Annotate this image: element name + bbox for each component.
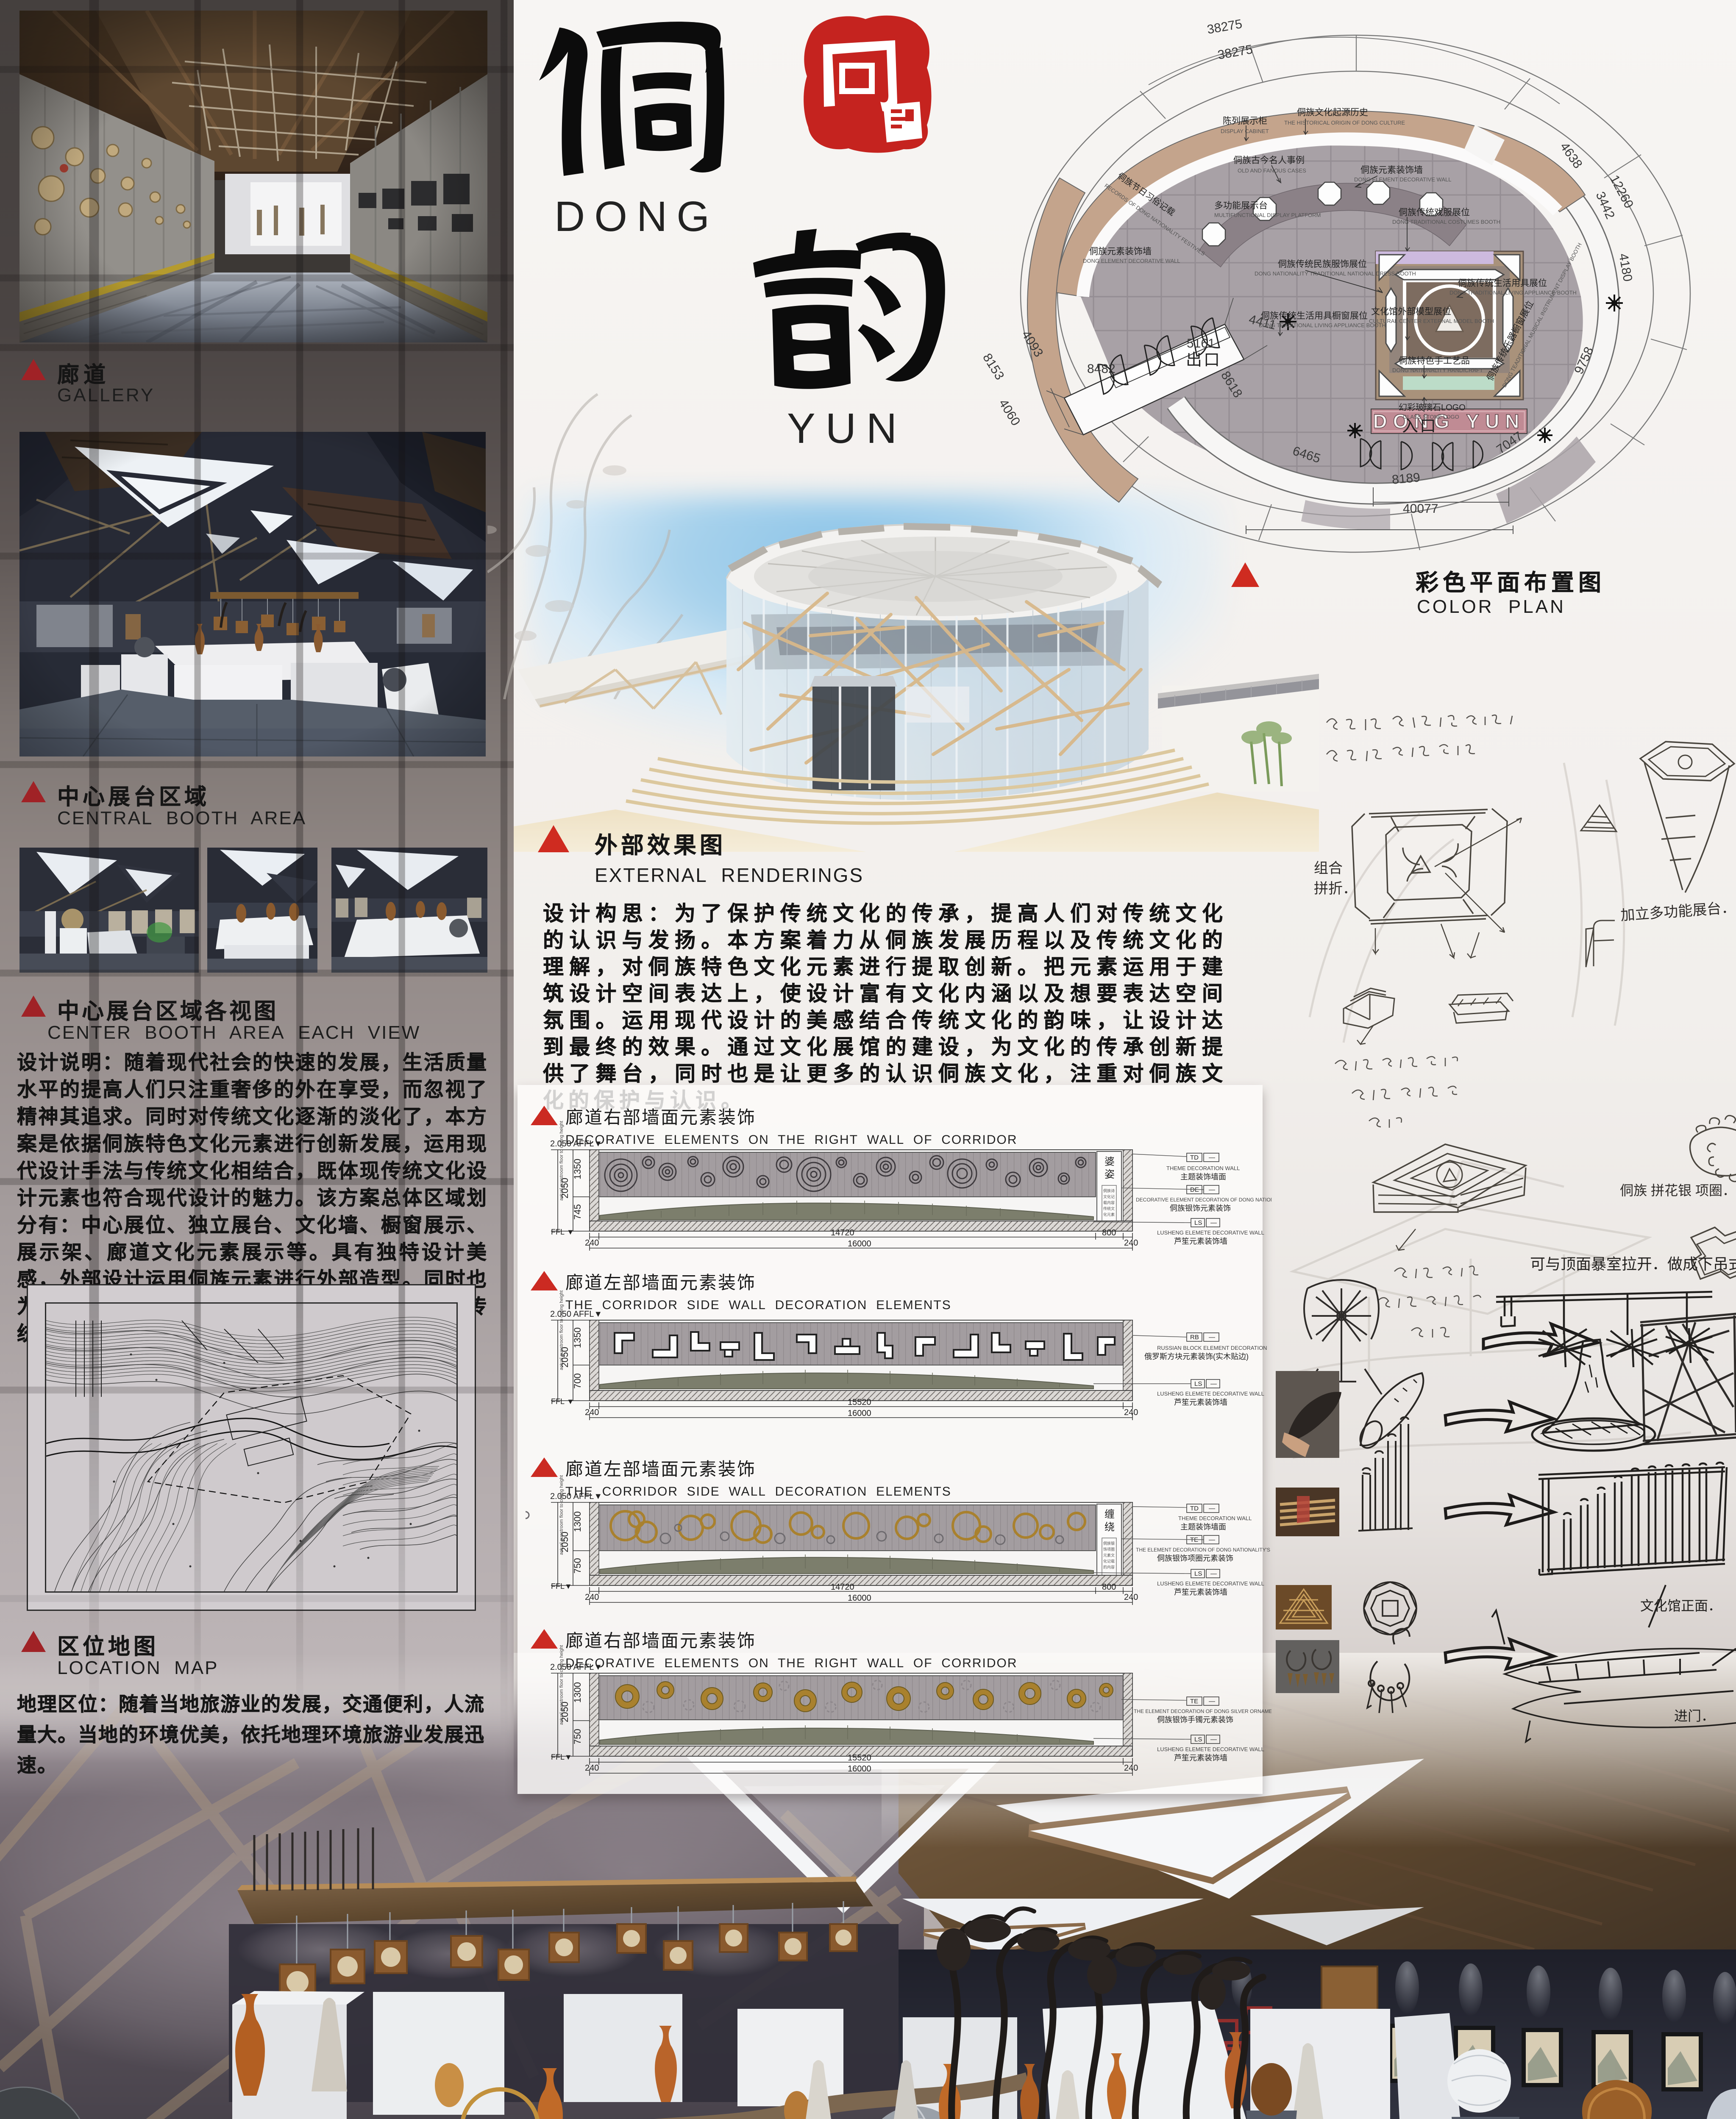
svg-text:40077: 40077: [1403, 502, 1438, 516]
svg-text:入口: 入口: [1402, 417, 1438, 435]
svg-text:绕: 绕: [1104, 1521, 1115, 1533]
svg-text:LUSHENG ELEMETE DECORATIVE WAL: LUSHENG ELEMETE DECORATIVE WALL: [1157, 1390, 1264, 1397]
svg-text:CULTURAL CENTER EXTERNAL MODEL: CULTURAL CENTER EXTERNAL MODEL BOOTH: [1369, 318, 1494, 324]
svg-text:FFL▼: FFL▼: [551, 1582, 572, 1591]
svg-text:DECORATIVE ELEMENTS ON THE: DECORATIVE ELEMENTS ON THE RIGHT WALL OF…: [565, 1133, 1018, 1147]
svg-text:DECORATIVE ELEMENTS ON THE: DECORATIVE ELEMENTS ON THE RIGHT WALL OF…: [565, 1656, 1018, 1670]
svg-text:240: 240: [1124, 1593, 1138, 1602]
svg-text:38275: 38275: [1216, 42, 1254, 62]
svg-text:LUSHENG ELEMETE DECORATIVE WAL: LUSHENG ELEMETE DECORATIVE WALL: [1157, 1746, 1264, 1752]
svg-text:745: 745: [572, 1204, 583, 1220]
svg-text:廊道左部墙面元素装饰: 廊道左部墙面元素装饰: [565, 1273, 756, 1293]
svg-text:—: —: [1209, 1698, 1215, 1705]
svg-text:4638: 4638: [1557, 140, 1585, 171]
svg-text:2.050 AFFL▼: 2.050 AFFL▼: [550, 1492, 602, 1501]
svg-text:750: 750: [572, 1558, 583, 1574]
svg-text:DECORATIVE ELEMENT DECORATION: DECORATIVE ELEMENT DECORATION OF DONG NA…: [1136, 1197, 1271, 1203]
svg-text:元素文: 元素文: [1103, 1553, 1115, 1557]
svg-text:DONG ELEMENT DECORATIVE WALL: DONG ELEMENT DECORATIVE WALL: [1083, 258, 1180, 264]
svg-text:THEME DECORATION WALL: THEME DECORATION WALL: [1166, 1165, 1240, 1171]
svg-text:的内容: 的内容: [1103, 1565, 1115, 1569]
svg-text:LUSHENG ELEMETE DECORATIVE WAL: LUSHENG ELEMETE DECORATIVE WALL: [1157, 1580, 1264, 1587]
svg-text:1300: 1300: [572, 1511, 583, 1532]
svg-text:侗族文化起源历史: 侗族文化起源历史: [1297, 108, 1368, 117]
svg-text:侗族古今名人事例: 侗族古今名人事例: [1233, 156, 1305, 165]
svg-text:THE CORRIDOR SIDE WALL DEC: THE CORRIDOR SIDE WALL DECORATION ELEMEN…: [565, 1298, 951, 1312]
svg-text:LS: LS: [1194, 1736, 1202, 1743]
svg-text:组合: 组合: [1314, 860, 1343, 876]
svg-text:廊道右部墙面元素装饰: 廊道右部墙面元素装饰: [565, 1107, 756, 1127]
svg-text:芦笙元素装饰墙: 芦笙元素装饰墙: [1174, 1754, 1227, 1762]
svg-text:拼折．: 拼折．: [1314, 881, 1357, 897]
svg-text:俄罗斯方块元素装饰(实木贴边): 俄罗斯方块元素装饰(实木贴边): [1144, 1352, 1249, 1361]
svg-text:FFL ▼: FFL ▼: [551, 1397, 574, 1406]
svg-text:DONG: DONG: [554, 193, 719, 240]
svg-text:2.050 AFFL▼: 2.050 AFFL▼: [550, 1663, 602, 1672]
svg-text:侗族传统生活用具橱窗展位: 侗族传统生活用具橱窗展位: [1261, 311, 1368, 321]
svg-text:多功能展示台: 多功能展示台: [1214, 201, 1268, 211]
svg-text:15520: 15520: [848, 1753, 871, 1763]
svg-text:LS: LS: [1194, 1380, 1202, 1388]
svg-text:TE: TE: [1190, 1698, 1198, 1705]
svg-text:—: —: [1209, 1186, 1215, 1193]
svg-text:240: 240: [585, 1238, 599, 1248]
svg-text:化记载: 化记载: [1103, 1559, 1115, 1563]
svg-text:主题装饰墙面: 主题装饰墙面: [1180, 1173, 1226, 1181]
svg-text:饰项圈: 饰项圈: [1103, 1547, 1115, 1552]
svg-text:姿: 姿: [1104, 1169, 1115, 1180]
svg-text:GLASS STONE LOGO: GLASS STONE LOGO: [1403, 414, 1459, 420]
svg-text:—: —: [1210, 1219, 1217, 1226]
svg-text:廊道右部墙面元素装饰: 廊道右部墙面元素装饰: [565, 1631, 756, 1651]
svg-text:16000: 16000: [848, 1593, 871, 1603]
svg-text:14720: 14720: [831, 1228, 854, 1237]
svg-text:廊道左部墙面元素装饰: 廊道左部墙面元素装饰: [565, 1459, 756, 1479]
svg-text:—: —: [1210, 1570, 1217, 1577]
svg-text:actual guestroom floor to ceil: actual guestroom floor to ceiling height: [559, 1475, 564, 1555]
svg-text:5161: 5161: [1187, 336, 1215, 350]
svg-text:DE: DE: [1190, 1186, 1199, 1193]
svg-text:侗族银饰手镯元素装饰: 侗族银饰手镯元素装饰: [1157, 1716, 1233, 1724]
svg-text:DONG NATIONALITY TRADITIONAL N: DONG NATIONALITY TRADITIONAL NATIONAL DR…: [1255, 270, 1416, 277]
svg-text:DONG ELEMENT DECORATIVE WALL: DONG ELEMENT DECORATIVE WALL: [1354, 176, 1451, 183]
svg-text:240: 240: [1124, 1408, 1138, 1417]
svg-text:芦笙元素装饰墙: 芦笙元素装饰墙: [1174, 1588, 1227, 1596]
svg-text:14720: 14720: [831, 1582, 854, 1592]
svg-text:240: 240: [585, 1763, 599, 1773]
svg-text:MULTIFUNCTIONAL DISPLAY PLATFO: MULTIFUNCTIONAL DISPLAY PLATFORM: [1214, 212, 1321, 218]
svg-text:DISPLAY CABINET: DISPLAY CABINET: [1221, 128, 1269, 134]
svg-text:侗族传统生活用具展位: 侗族传统生活用具展位: [1458, 278, 1547, 288]
svg-text:—: —: [1209, 1536, 1215, 1543]
svg-text:侗族诗: 侗族诗: [1103, 1188, 1115, 1193]
svg-text:LUSHENG ELEMETE DECORATIVE WAL: LUSHENG ELEMETE DECORATIVE WALL: [1157, 1229, 1264, 1236]
svg-text:2.050 AFFL▼: 2.050 AFFL▼: [550, 1139, 602, 1148]
svg-text:化元素: 化元素: [1103, 1212, 1115, 1217]
svg-text:750: 750: [572, 1729, 583, 1744]
svg-text:RUSSIAN BLOCK ELEMENT DECORATI: RUSSIAN BLOCK ELEMENT DECORATION: [1157, 1345, 1267, 1351]
svg-text:侗族特色手工艺品: 侗族特色手工艺品: [1399, 356, 1470, 366]
svg-text:—: —: [1209, 1334, 1215, 1341]
svg-text:侗族银: 侗族银: [1103, 1541, 1115, 1546]
svg-text:700: 700: [572, 1373, 583, 1389]
svg-text:1300: 1300: [572, 1682, 583, 1703]
svg-text:—: —: [1209, 1505, 1215, 1512]
svg-text:陈列展示柜: 陈列展示柜: [1223, 116, 1267, 126]
svg-text:actual guestroom floor to ceil: actual guestroom floor to ceiling height: [559, 1290, 564, 1370]
svg-text:YUN: YUN: [787, 405, 907, 452]
svg-text:侗族传统戏服展位: 侗族传统戏服展位: [1399, 208, 1470, 217]
svg-text:芦笙元素装饰墙: 芦笙元素装饰墙: [1174, 1237, 1227, 1246]
svg-text:主题装饰墙面: 主题装饰墙面: [1180, 1523, 1226, 1531]
svg-text:侗族传统民族服饰展位: 侗族传统民族服饰展位: [1278, 259, 1367, 269]
svg-text:1350: 1350: [572, 1327, 583, 1348]
svg-text:进门．: 进门．: [1674, 1708, 1715, 1724]
svg-text:侗族银饰元素装饰: 侗族银饰元素装饰: [1170, 1204, 1231, 1212]
svg-text:芦笙元素装饰墙: 芦笙元素装饰墙: [1174, 1398, 1227, 1407]
svg-text:侗族银饰项圈元素装饰: 侗族银饰项圈元素装饰: [1157, 1554, 1233, 1563]
svg-text:文化馆外部模型展位: 文化馆外部模型展位: [1371, 307, 1451, 317]
svg-text:载内容: 载内容: [1103, 1200, 1115, 1205]
svg-text:THE ELEMENT DECORATION OF DONG: THE ELEMENT DECORATION OF DONG NATIONALI…: [1136, 1547, 1271, 1553]
svg-text:侗族元素装饰墙: 侗族元素装饰墙: [1089, 247, 1152, 256]
svg-text:DONG TRADITIONAL COSTUMES BOOT: DONG TRADITIONAL COSTUMES BOOTH: [1392, 219, 1500, 225]
svg-text:THE ELEMENT DECORATION OF DONG: THE ELEMENT DECORATION OF DONG SILVER OR…: [1134, 1708, 1271, 1714]
svg-text:文化馆正面．: 文化馆正面．: [1640, 1598, 1722, 1613]
svg-text:加立多功能展台．: 加立多功能展台．: [1620, 900, 1736, 924]
svg-text:240: 240: [585, 1593, 599, 1602]
svg-text:16000: 16000: [848, 1239, 871, 1249]
svg-text:LS: LS: [1194, 1219, 1202, 1226]
svg-text:幻彩玻璃石LOGO: 幻彩玻璃石LOGO: [1399, 403, 1466, 412]
svg-text:actual guestroom floor to ceil: actual guestroom floor to ceiling height: [559, 1121, 564, 1201]
svg-text:actual guestroom floor to ceil: actual guestroom floor to ceiling height: [559, 1645, 564, 1725]
svg-text:—: —: [1210, 1736, 1217, 1743]
svg-text:DONG NATIONALITY HANDICRAFT: DONG NATIONALITY HANDICRAFT: [1392, 367, 1483, 373]
svg-text:—: —: [1209, 1154, 1215, 1161]
svg-text:800: 800: [1102, 1228, 1116, 1237]
svg-text:—: —: [1210, 1380, 1217, 1388]
svg-text:文化记: 文化记: [1103, 1194, 1115, 1199]
svg-text:4180: 4180: [1616, 252, 1635, 282]
svg-text:RB: RB: [1190, 1334, 1199, 1341]
svg-text:8189: 8189: [1391, 470, 1421, 487]
svg-text:THEME DECORATION WALL: THEME DECORATION WALL: [1178, 1515, 1252, 1521]
svg-text:15520: 15520: [848, 1398, 871, 1407]
svg-text:出口: 出口: [1186, 351, 1221, 369]
svg-text:800: 800: [1102, 1582, 1116, 1592]
svg-text:TD: TD: [1190, 1154, 1199, 1161]
svg-text:240: 240: [1124, 1763, 1138, 1773]
svg-text:TD: TD: [1190, 1505, 1199, 1512]
svg-text:侗族元素装饰墙: 侗族元素装饰墙: [1360, 165, 1423, 175]
svg-text:FFL▼: FFL▼: [551, 1753, 572, 1761]
svg-text:38275: 38275: [1206, 17, 1243, 37]
svg-text:传统文: 传统文: [1103, 1206, 1115, 1211]
svg-text:2.050 AFFL▼: 2.050 AFFL▼: [550, 1310, 602, 1319]
svg-text:缠: 缠: [1104, 1509, 1115, 1520]
svg-text:FFL ▼: FFL ▼: [551, 1228, 574, 1236]
svg-text:DONG TRADITIONAL LIVING APPLIA: DONG TRADITIONAL LIVING APPLIANCE BOOTH: [1259, 322, 1386, 328]
svg-text:240: 240: [1124, 1238, 1138, 1248]
svg-text:THE CORRIDOR SIDE WALL DEC: THE CORRIDOR SIDE WALL DECORATION ELEMEN…: [565, 1485, 951, 1499]
svg-text:侗族 拼花银 项圈．: 侗族 拼花银 项圈．: [1620, 1183, 1736, 1198]
svg-text:8482: 8482: [1087, 362, 1116, 376]
svg-text:16000: 16000: [848, 1409, 871, 1418]
svg-text:可与顶面暴室拉开．做成下吊式: 可与顶面暴室拉开．做成下吊式: [1530, 1255, 1736, 1273]
svg-text:婆: 婆: [1104, 1156, 1115, 1168]
svg-text:1350: 1350: [572, 1159, 583, 1179]
svg-text:OLD AND FANOUS CASES: OLD AND FANOUS CASES: [1238, 167, 1306, 174]
svg-text:16000: 16000: [848, 1764, 871, 1774]
svg-text:THE HISTORICAL ORIGIN OF DONG: THE HISTORICAL ORIGIN OF DONG CULTURE: [1284, 120, 1405, 126]
svg-text:240: 240: [585, 1408, 599, 1417]
svg-text:LS: LS: [1194, 1570, 1202, 1577]
